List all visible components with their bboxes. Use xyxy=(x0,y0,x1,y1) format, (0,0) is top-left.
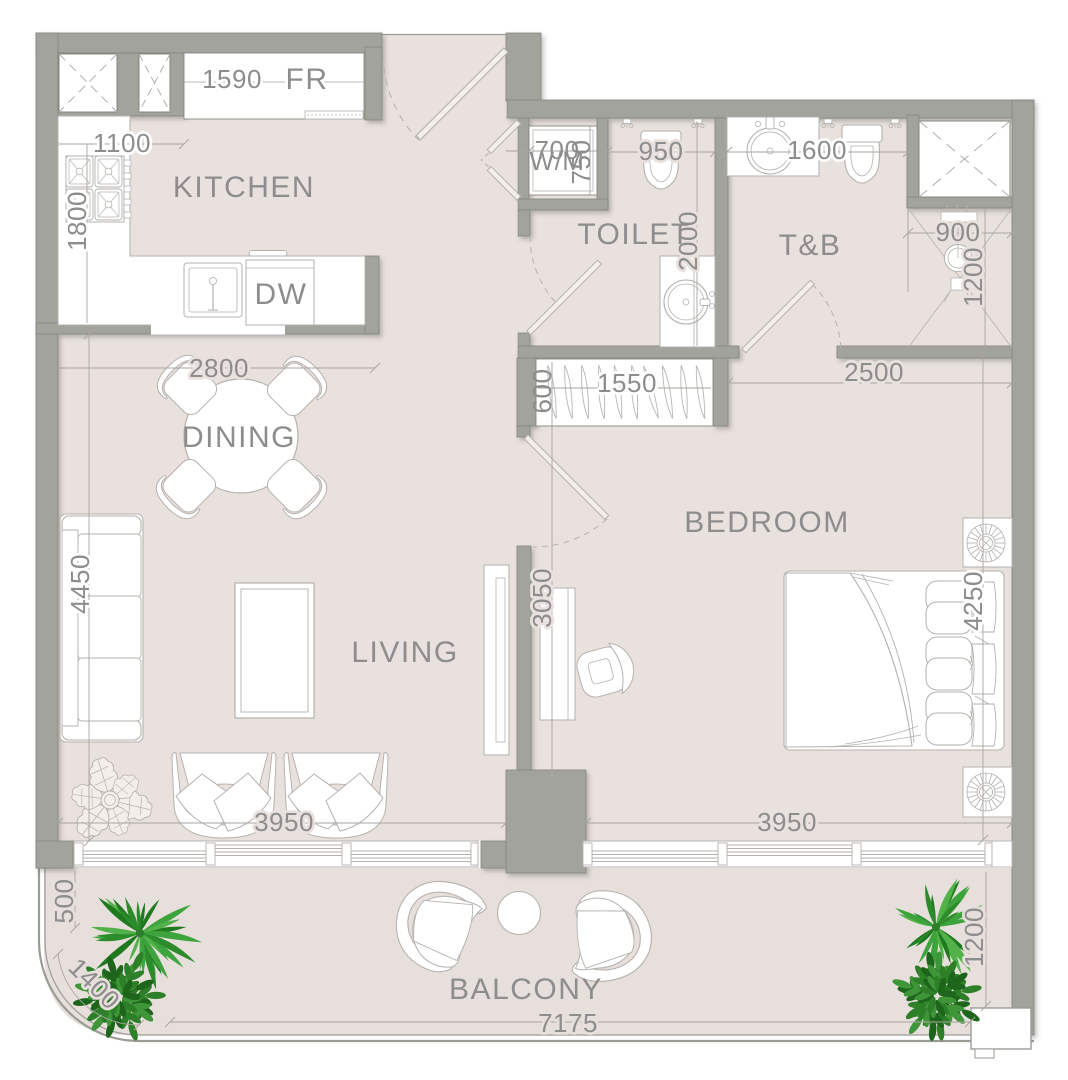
svg-text:DW: DW xyxy=(255,278,308,311)
svg-text:1550: 1550 xyxy=(597,368,657,398)
svg-text:950: 950 xyxy=(639,136,684,166)
svg-text:1100: 1100 xyxy=(93,128,151,158)
svg-text:1800: 1800 xyxy=(62,191,92,251)
svg-text:4450: 4450 xyxy=(65,554,95,614)
svg-text:900: 900 xyxy=(936,217,981,247)
svg-text:3950: 3950 xyxy=(757,807,817,837)
svg-text:BALCONY: BALCONY xyxy=(449,973,603,1006)
svg-text:4250: 4250 xyxy=(958,571,988,631)
svg-text:7175: 7175 xyxy=(538,1008,598,1038)
svg-text:1200: 1200 xyxy=(959,907,989,967)
svg-text:1590: 1590 xyxy=(202,64,262,94)
svg-text:3950: 3950 xyxy=(254,807,314,837)
svg-text:600: 600 xyxy=(527,369,557,414)
svg-text:1600: 1600 xyxy=(787,135,847,165)
svg-text:BEDROOM: BEDROOM xyxy=(684,506,850,539)
svg-text:TOILET: TOILET xyxy=(577,218,690,251)
svg-text:3050: 3050 xyxy=(527,568,557,628)
svg-text:500: 500 xyxy=(49,879,79,924)
svg-text:750: 750 xyxy=(566,140,596,185)
svg-text:DINING: DINING xyxy=(182,421,296,454)
svg-text:1200: 1200 xyxy=(958,247,988,307)
svg-text:T&B: T&B xyxy=(779,229,842,262)
svg-text:2800: 2800 xyxy=(189,353,249,383)
svg-text:KITCHEN: KITCHEN xyxy=(173,171,315,204)
svg-text:LIVING: LIVING xyxy=(351,636,458,669)
svg-text:FR: FR xyxy=(286,63,329,96)
svg-text:2500: 2500 xyxy=(844,357,904,387)
